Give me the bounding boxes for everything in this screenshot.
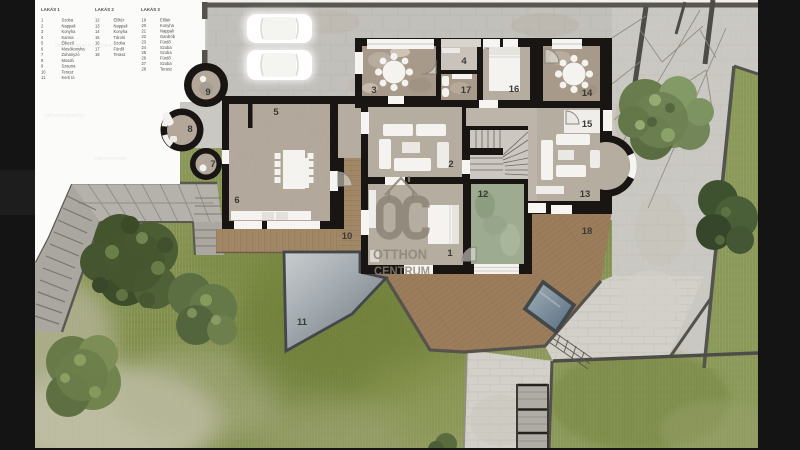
svg-text:Szoba: Szoba: [114, 41, 126, 46]
svg-text:5: 5: [273, 107, 279, 118]
svg-text:Étkező: Étkező: [62, 41, 75, 46]
svg-text:10: 10: [41, 69, 46, 74]
svg-text:Terasz: Terasz: [62, 69, 74, 74]
svg-text:18: 18: [95, 52, 100, 57]
svg-text:Nappali: Nappali: [114, 23, 128, 28]
svg-text:14: 14: [95, 29, 100, 34]
svg-text:Konyha: Konyha: [160, 23, 175, 28]
svg-text:16: 16: [509, 84, 520, 95]
svg-text:13: 13: [580, 189, 591, 200]
svg-text:Tároló: Tároló: [114, 35, 126, 40]
svg-text:OTTHON: OTTHON: [373, 246, 427, 262]
svg-text:12: 12: [95, 18, 100, 23]
svg-text:12: 12: [478, 189, 489, 200]
svg-text:Fürdő: Fürdő: [160, 39, 171, 44]
svg-text:3: 3: [371, 85, 376, 96]
svg-text:1: 1: [447, 248, 453, 259]
svg-text:26: 26: [142, 56, 147, 61]
svg-text:LAKÁS 2: LAKÁS 2: [95, 7, 114, 12]
svg-text:Zuhanyzó: Zuhanyzó: [62, 52, 81, 57]
svg-text:Konyha: Konyha: [114, 29, 129, 34]
svg-text:17: 17: [95, 46, 100, 51]
svg-text:Szoba: Szoba: [160, 45, 172, 50]
svg-text:16: 16: [95, 41, 100, 46]
svg-text:Gardrób: Gardrób: [160, 34, 176, 39]
svg-text:Szauna: Szauna: [62, 64, 77, 69]
svg-text:Fürdő: Fürdő: [114, 46, 125, 51]
svg-text:18: 18: [582, 226, 593, 237]
svg-text:20: 20: [142, 23, 147, 28]
svg-text:Nappali: Nappali: [62, 23, 76, 28]
svg-text:Előtér: Előtér: [114, 18, 125, 23]
svg-text:Terasz: Terasz: [160, 67, 172, 72]
svg-text:Szoba: Szoba: [62, 18, 74, 23]
svg-text:11: 11: [297, 317, 308, 328]
svg-text:11: 11: [41, 75, 46, 80]
svg-text:27: 27: [142, 61, 147, 66]
svg-text:23: 23: [142, 39, 147, 44]
svg-text:CENTRUM: CENTRUM: [374, 265, 430, 278]
svg-text:Mosdó: Mosdó: [62, 58, 75, 63]
svg-text:LAKÁS 1: LAKÁS 1: [41, 7, 60, 12]
svg-text:24: 24: [142, 45, 147, 50]
svg-text:2: 2: [448, 159, 453, 170]
svg-text:Kamra: Kamra: [62, 35, 75, 40]
svg-text:Terasz: Terasz: [114, 52, 126, 57]
svg-text:Fürdő: Fürdő: [160, 56, 171, 61]
svg-text:Nappali: Nappali: [160, 28, 174, 33]
svg-text:Előtér: Előtér: [160, 18, 171, 23]
svg-text:17: 17: [461, 85, 472, 96]
svg-text:14: 14: [582, 88, 593, 99]
svg-text:9: 9: [205, 87, 210, 98]
svg-text:22: 22: [142, 34, 147, 39]
svg-text:4: 4: [461, 56, 467, 67]
svg-text:otthoncentrum: otthoncentrum: [95, 156, 127, 162]
svg-text:8: 8: [187, 124, 192, 135]
svg-text:19: 19: [142, 18, 147, 23]
svg-text:otthoncentrum.hu: otthoncentrum.hu: [45, 113, 84, 119]
svg-text:LAKÁS 3: LAKÁS 3: [141, 7, 160, 12]
svg-text:28: 28: [142, 67, 147, 72]
svg-text:15: 15: [95, 35, 100, 40]
svg-text:6: 6: [234, 195, 239, 206]
svg-text:25: 25: [142, 50, 147, 55]
svg-text:13: 13: [95, 23, 100, 28]
svg-text:15: 15: [582, 119, 593, 130]
svg-text:Mosókonyha: Mosókonyha: [62, 46, 86, 51]
svg-text:21: 21: [142, 28, 147, 33]
svg-text:Kerti tó: Kerti tó: [62, 75, 76, 80]
svg-text:Konyha: Konyha: [62, 29, 77, 34]
svg-text:Szoba: Szoba: [160, 61, 172, 66]
svg-text:7: 7: [210, 159, 215, 170]
svg-text:10: 10: [342, 231, 353, 242]
svg-text:Szoba: Szoba: [160, 50, 172, 55]
